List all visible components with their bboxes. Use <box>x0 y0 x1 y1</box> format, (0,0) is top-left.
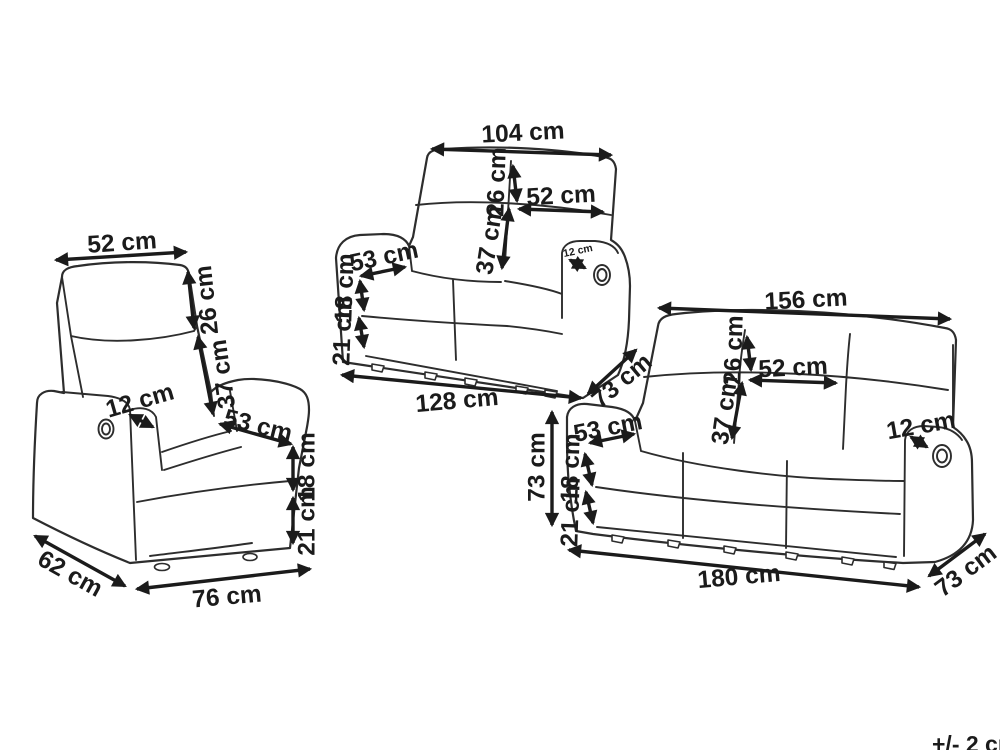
diagram-canvas: 52 cm 26 cm 37 cm 12 cm 53 cm 18 cm 21 c… <box>0 0 1000 750</box>
dim-label-two-seater-base-height: 21 cm <box>328 296 357 366</box>
tolerance-note: +/- 2 cm <box>932 731 1000 750</box>
armchair-foot <box>243 554 257 561</box>
dim-label-two-seater-width: 128 cm <box>414 384 499 418</box>
dim-label-armchair-width: 76 cm <box>191 581 263 614</box>
furniture-dimension-diagram: 52 cm 26 cm 37 cm 12 cm 53 cm 18 cm 21 c… <box>0 0 1000 750</box>
armchair-outline <box>33 262 309 563</box>
dim-label-three-seater-headrest-height: 26 cm <box>719 315 748 385</box>
dim-label-three-seater-base-height: 21 cm <box>556 477 585 547</box>
dim-label-two-seater-seat-width: 52 cm <box>526 181 597 212</box>
dim-label-three-seater-height: 73 cm <box>524 432 551 501</box>
dim-label-three-seater-back-width: 156 cm <box>764 284 848 315</box>
armchair-foot <box>155 564 170 571</box>
dim-label-armchair-base-height: 21 cm <box>294 486 321 555</box>
dim-label-two-seater-back-width: 104 cm <box>481 117 565 148</box>
dim-label-three-seater-seat-width: 52 cm <box>758 353 829 384</box>
dim-label-armchair-back-width: 52 cm <box>86 227 157 259</box>
